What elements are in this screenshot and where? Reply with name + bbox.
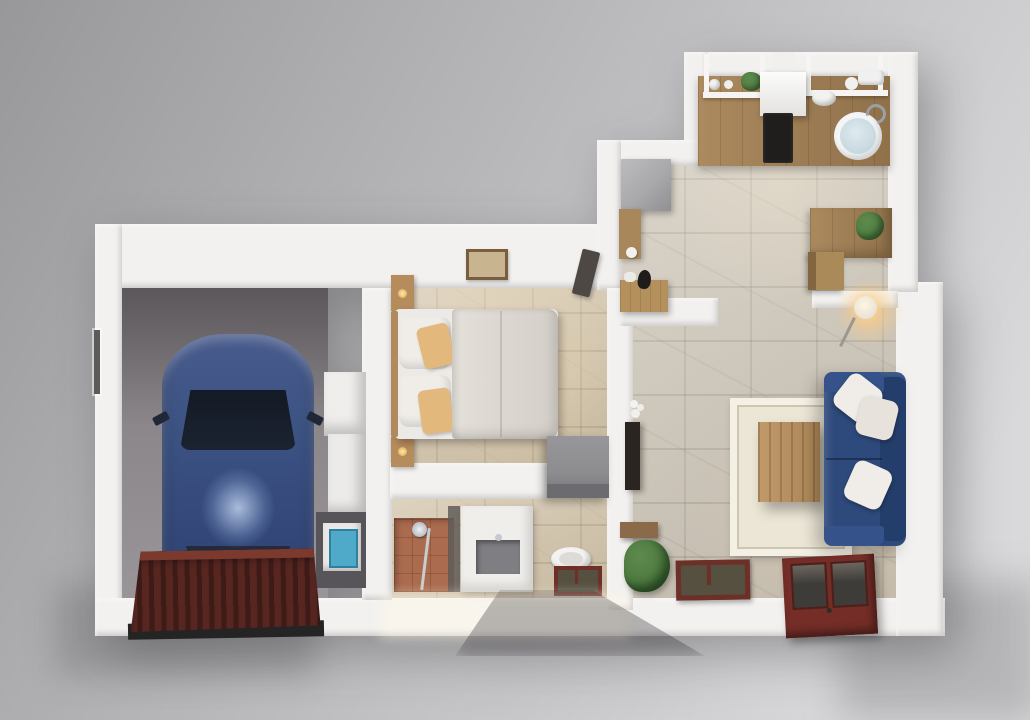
garage-shelf-box-lower [328, 434, 366, 518]
bed-cushion-bottom [417, 387, 455, 435]
wall-entry-left [597, 140, 621, 290]
nightstand-top [391, 275, 414, 311]
living-window [676, 559, 751, 600]
wall-top-main [95, 224, 622, 288]
nightstand-top-lamp [398, 289, 407, 298]
french-door [782, 554, 878, 639]
car-windshield [180, 390, 296, 450]
coffee-table [758, 422, 820, 502]
wall-hook [626, 247, 637, 258]
vanity-basin [476, 540, 520, 574]
bed-headboard [391, 311, 398, 437]
white-flowers [628, 400, 648, 424]
entry-bench [620, 280, 668, 312]
sofa-seat-seam [826, 458, 882, 460]
toilet-seat [559, 552, 583, 566]
white-shoes [624, 272, 636, 282]
bed [394, 309, 558, 439]
fridge [621, 159, 671, 211]
living-window-mullion [707, 565, 711, 585]
wall-garage-bedroom [362, 288, 392, 600]
gray-dresser-front [547, 484, 609, 498]
gray-dresser [547, 436, 609, 498]
bed-duvet-seam [500, 311, 502, 437]
wall-bedroom-bathroom [390, 463, 548, 499]
left-wall-window-slit [94, 330, 100, 394]
kitchen-shelf-left [703, 92, 767, 98]
sofa [824, 372, 906, 546]
washing-machine [323, 523, 361, 571]
shower-partition [448, 506, 460, 592]
vanity-faucet [495, 534, 502, 541]
garage-shelf-box-upper [324, 372, 366, 436]
apartment-floorplan [0, 0, 1030, 720]
french-door-pane-right [830, 560, 868, 608]
bathroom-window-mullion [575, 570, 578, 584]
bathroom-window [554, 566, 602, 596]
nightstand-bottom-lamp [398, 447, 407, 456]
shelf-bowl-4 [845, 77, 858, 90]
sofa-armrest-bottom [824, 526, 884, 546]
washing-machine-door [329, 529, 358, 568]
wall-kitchen-right [888, 52, 918, 292]
shelf-bracket-1 [704, 54, 709, 96]
car-roof-shine [190, 456, 286, 560]
shelf-bowl-1 [709, 79, 720, 90]
shelf-bowl-3 [812, 90, 836, 106]
dining-chair-back [808, 252, 816, 290]
range-hood [760, 72, 806, 116]
living-wall-shelf [620, 522, 658, 538]
bed-duvet [452, 309, 558, 439]
shelf-plant [741, 72, 762, 91]
render-canvas [0, 0, 1030, 720]
wall-picture [466, 249, 508, 280]
floor-lamp-head [854, 296, 877, 319]
french-door-handle [827, 608, 832, 613]
flower-blob-3 [631, 409, 640, 418]
garage-door [129, 548, 320, 633]
nightstand-bottom [391, 437, 414, 467]
bathroom-vanity [461, 506, 533, 592]
wall-tv [625, 422, 640, 490]
shelf-board [858, 70, 884, 85]
wall-left [95, 224, 122, 634]
cooktop [763, 113, 793, 163]
shelf-bowl-2 [724, 80, 733, 89]
french-door-pane-left [790, 562, 828, 610]
dining-chair [808, 252, 844, 290]
kitchen-sink-basin [840, 118, 876, 154]
shower-head [412, 522, 427, 537]
